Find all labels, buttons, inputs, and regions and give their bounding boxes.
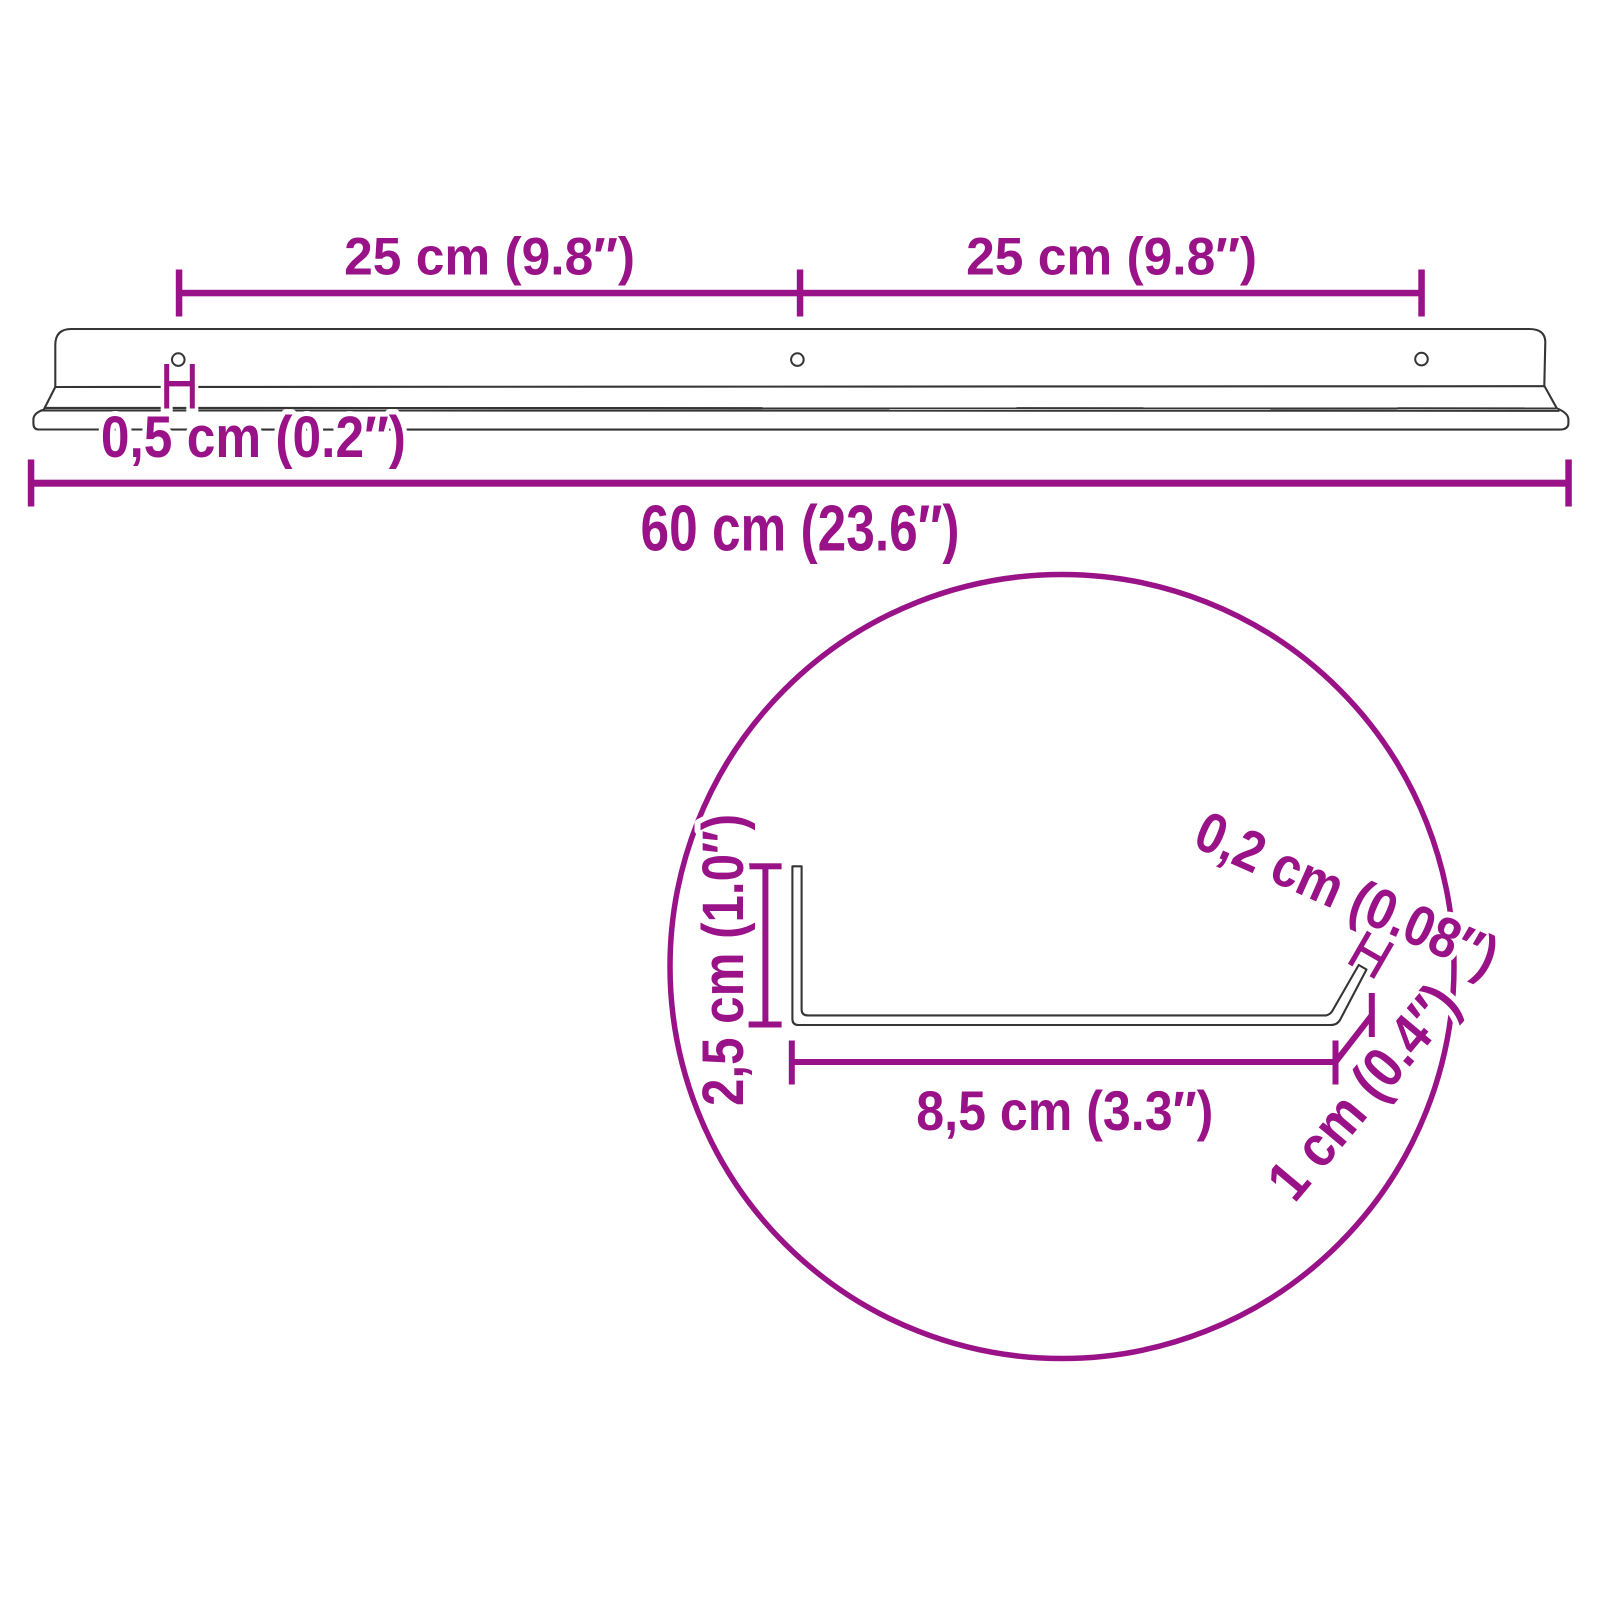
svg-text:25 cm (9.8″): 25 cm (9.8″) [344, 228, 635, 287]
svg-text:60 cm (23.6″): 60 cm (23.6″) [641, 492, 960, 565]
svg-text:25 cm (9.8″): 25 cm (9.8″) [966, 228, 1257, 287]
svg-text:0,5 cm (0.2″): 0,5 cm (0.2″) [101, 405, 406, 470]
svg-text:2,5 cm (1.0″): 2,5 cm (1.0″) [691, 814, 756, 1106]
svg-text:8,5 cm (3.3″): 8,5 cm (3.3″) [916, 1079, 1213, 1142]
